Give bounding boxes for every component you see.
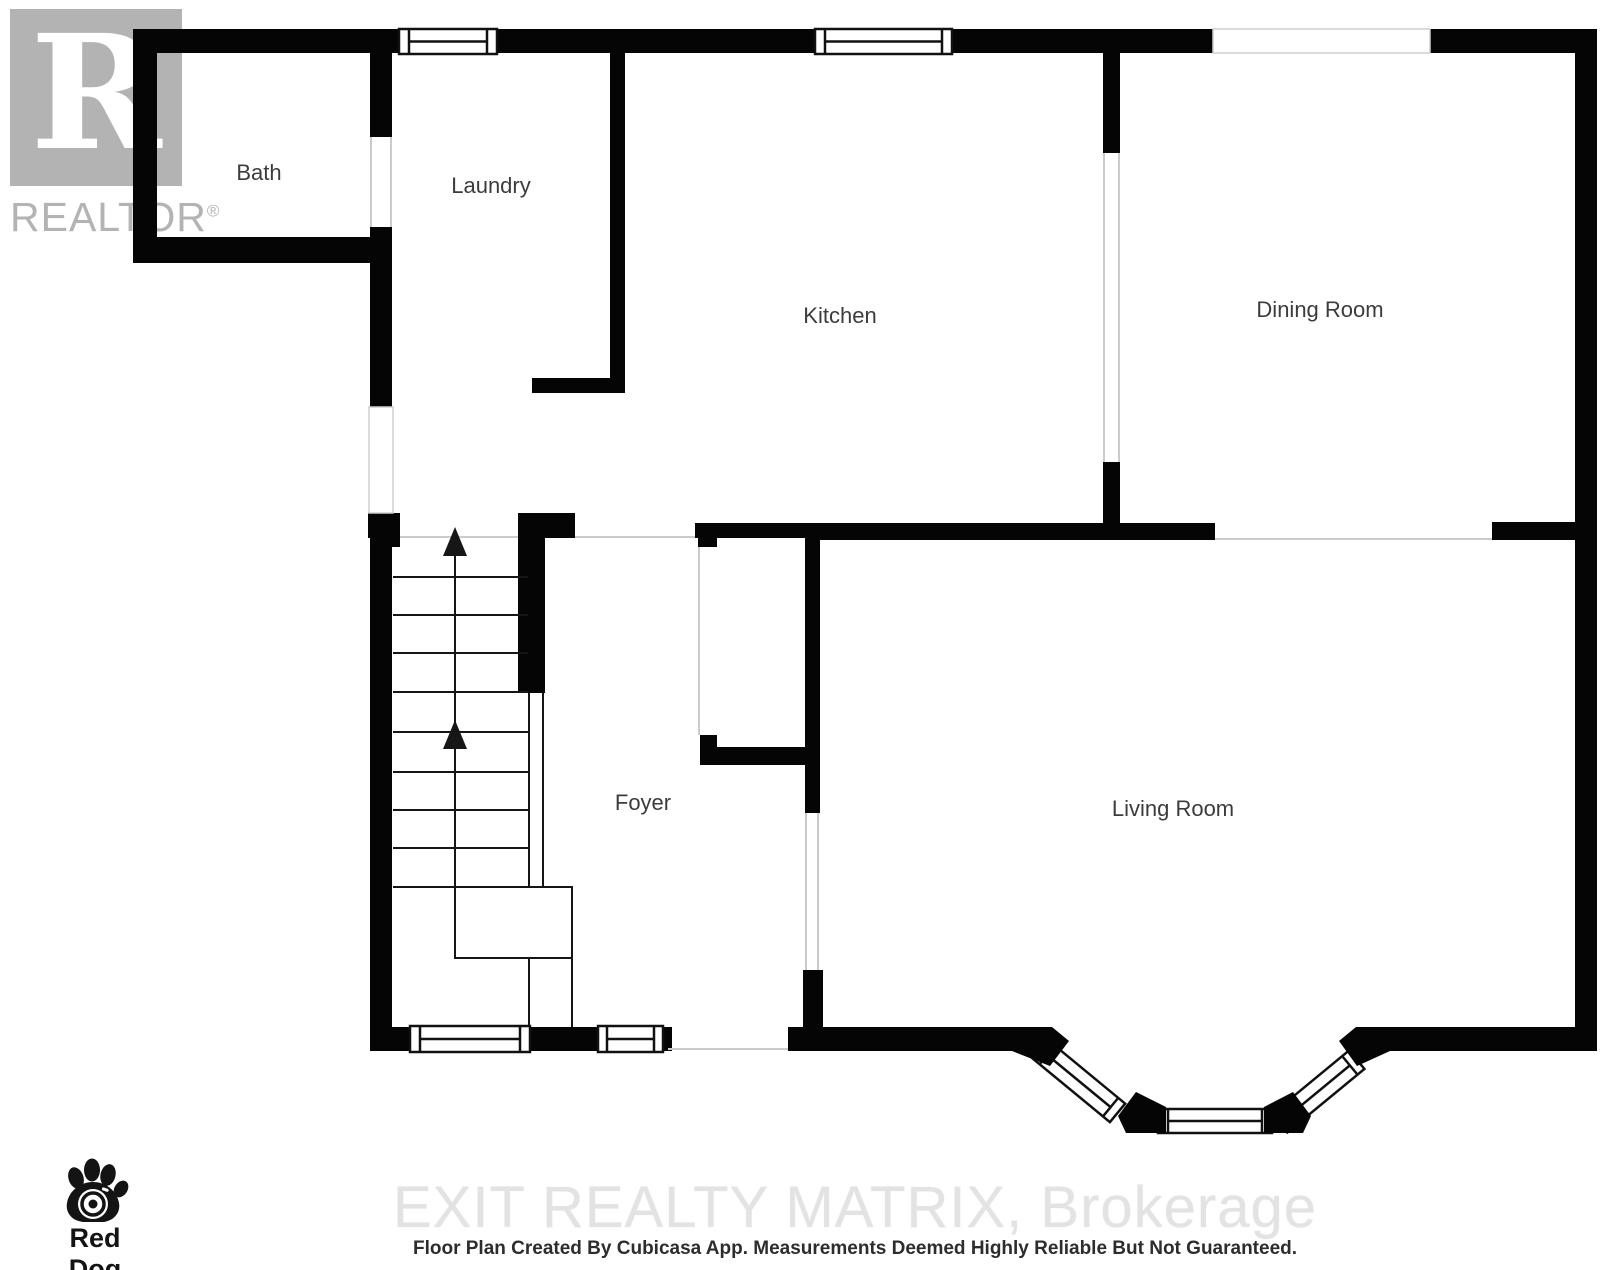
room-label-foyer: Foyer — [615, 790, 671, 816]
winder-step — [455, 887, 572, 958]
room-label-dining-room: Dining Room — [1256, 297, 1383, 323]
left-wall-window — [369, 407, 393, 513]
red-dog-digital-logo: Red Dog DIGITAL — [40, 1158, 150, 1270]
up-arrow-icon — [443, 527, 467, 556]
kitchen-window — [815, 29, 952, 54]
brokerage-watermark: EXIT REALTY MATRIX, Brokerage — [300, 1174, 1410, 1241]
bay-window-center-pane — [1158, 1109, 1272, 1133]
room-label-living-room: Living Room — [1112, 796, 1234, 822]
foyer-window-right — [598, 1026, 663, 1052]
room-label-kitchen: Kitchen — [803, 303, 876, 329]
room-label-bath: Bath — [236, 160, 281, 186]
up-arrow-icon — [443, 720, 467, 749]
floor-plan-page: R REALTOR® — [0, 0, 1600, 1270]
staircase — [393, 545, 572, 1027]
laundry-window — [399, 29, 497, 54]
foyer-window-left — [410, 1026, 530, 1052]
plain-windows — [369, 29, 1430, 513]
paw-camera-icon — [40, 1158, 150, 1222]
red-dog-name: Red Dog — [40, 1223, 150, 1270]
room-label-laundry: Laundry — [451, 173, 531, 199]
floor-plan-drawing — [0, 0, 1600, 1270]
disclaimer-caption: Floor Plan Created By Cubicasa App. Meas… — [300, 1238, 1410, 1260]
dining-room-window — [1213, 29, 1430, 53]
